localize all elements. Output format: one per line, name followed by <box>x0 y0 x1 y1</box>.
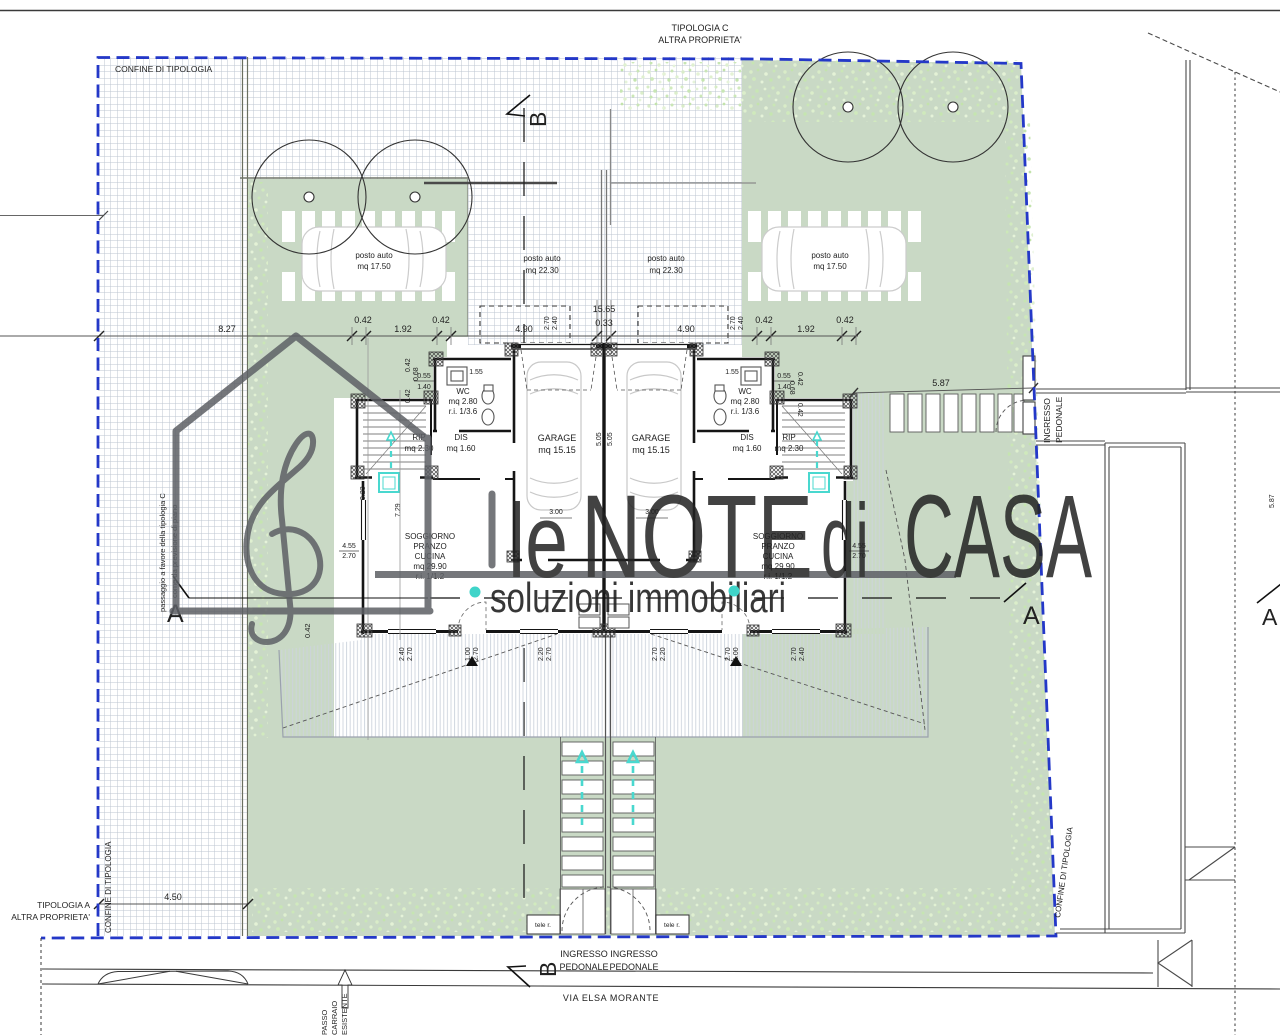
svg-text:posto auto: posto auto <box>355 251 393 260</box>
svg-text:2.70: 2.70 <box>342 553 356 560</box>
svg-text:A: A <box>1023 602 1040 630</box>
svg-text:r.i. 1/3.6: r.i. 1/3.6 <box>731 407 760 416</box>
svg-text:4.50: 4.50 <box>164 892 182 902</box>
svg-text:B: B <box>525 112 551 127</box>
svg-text:1.92: 1.92 <box>797 324 815 334</box>
svg-text:5.05: 5.05 <box>607 432 614 446</box>
svg-text:0.42: 0.42 <box>303 623 312 638</box>
svg-text:mq 1.60: mq 1.60 <box>447 444 476 453</box>
svg-text:5.87: 5.87 <box>1269 494 1276 508</box>
svg-text:tele r.: tele r. <box>664 922 680 929</box>
svg-text:PASSO: PASSO <box>320 1010 329 1035</box>
svg-text:2.40: 2.40 <box>399 647 406 661</box>
svg-text:4.55: 4.55 <box>342 543 356 550</box>
svg-text:ALTRA PROPRIETA': ALTRA PROPRIETA' <box>11 912 90 922</box>
svg-text:CARRAIO: CARRAIO <box>330 1001 339 1035</box>
svg-text:mq 2.80: mq 2.80 <box>731 397 760 406</box>
svg-text:DIS: DIS <box>454 433 467 442</box>
svg-text:mq 2.30: mq 2.30 <box>775 444 804 453</box>
svg-text:mq 1.60: mq 1.60 <box>733 444 762 453</box>
svg-text:0.42: 0.42 <box>405 389 412 403</box>
svg-text:2.20: 2.20 <box>538 647 545 661</box>
svg-text:WC: WC <box>456 387 470 396</box>
svg-text:2.40: 2.40 <box>552 316 559 330</box>
svg-text:GARAGE: GARAGE <box>632 433 671 443</box>
svg-text:0.42: 0.42 <box>432 315 450 325</box>
svg-text:1.55: 1.55 <box>469 369 483 376</box>
svg-text:INGRESSO: INGRESSO <box>1042 398 1052 443</box>
svg-text:di: di <box>821 483 869 600</box>
svg-text:0.42: 0.42 <box>354 315 372 325</box>
svg-text:CASA: CASA <box>904 471 1092 603</box>
svg-text:passaggio a favore della tipol: passaggio a favore della tipologia C <box>158 493 167 612</box>
svg-text:1.00: 1.00 <box>733 647 740 661</box>
svg-text:2.70: 2.70 <box>791 647 798 661</box>
svg-text:VIA ELSA MORANTE: VIA ELSA MORANTE <box>563 993 659 1003</box>
svg-text:4.90: 4.90 <box>677 324 695 334</box>
svg-text:A: A <box>1262 604 1278 630</box>
svg-text:tele r.: tele r. <box>535 922 551 929</box>
svg-text:2.70: 2.70 <box>730 316 737 330</box>
svg-text:0.42: 0.42 <box>796 403 803 417</box>
svg-text:ALTRA PROPRIETA': ALTRA PROPRIETA' <box>658 35 742 45</box>
svg-text:TIPOLOGIA A: TIPOLOGIA A <box>37 900 90 910</box>
svg-text:0.33: 0.33 <box>595 318 613 328</box>
svg-text:mq 22.30: mq 22.30 <box>525 266 559 275</box>
svg-text:2.70: 2.70 <box>546 647 553 661</box>
svg-text:soluzioni immobiliari: soluzioni immobiliari <box>490 574 786 621</box>
svg-text:RIP: RIP <box>782 433 795 442</box>
svg-text:8.27: 8.27 <box>218 324 236 334</box>
svg-text:B: B <box>535 962 561 977</box>
svg-text:DIS: DIS <box>740 433 753 442</box>
svg-text:2.70: 2.70 <box>544 316 551 330</box>
svg-text:15.65: 15.65 <box>593 304 616 314</box>
svg-text:posto auto: posto auto <box>647 254 685 263</box>
svg-text:posto auto: posto auto <box>811 251 849 260</box>
svg-text:PEDONALE: PEDONALE <box>609 962 658 972</box>
svg-text:mq 22.30: mq 22.30 <box>649 266 683 275</box>
svg-text:2.40: 2.40 <box>799 647 806 661</box>
svg-text:2.70: 2.70 <box>725 647 732 661</box>
svg-text:PEDONALE: PEDONALE <box>1054 396 1064 443</box>
svg-text:7.29: 7.29 <box>395 503 402 517</box>
svg-text:2.40: 2.40 <box>738 316 745 330</box>
svg-text:r.i. 1/3.6: r.i. 1/3.6 <box>449 407 478 416</box>
svg-text:mq 15.15: mq 15.15 <box>538 445 576 455</box>
svg-text:2.70: 2.70 <box>407 647 414 661</box>
svg-text:INGRESSO: INGRESSO <box>610 949 658 959</box>
svg-text:0.42: 0.42 <box>796 372 803 386</box>
svg-text:GARAGE: GARAGE <box>538 433 577 443</box>
svg-text:WC: WC <box>738 387 752 396</box>
svg-text:1.55: 1.55 <box>725 369 739 376</box>
svg-text:4.90: 4.90 <box>515 324 533 334</box>
svg-text:posto auto: posto auto <box>523 254 561 263</box>
svg-text:0.42: 0.42 <box>836 315 854 325</box>
svg-text:TIPOLOGIA C: TIPOLOGIA C <box>671 23 729 33</box>
svg-text:1.40: 1.40 <box>417 384 431 391</box>
svg-text:mq 17.50: mq 17.50 <box>357 262 391 271</box>
svg-text:5.05: 5.05 <box>596 432 603 446</box>
svg-text:INGRESSO: INGRESSO <box>560 949 608 959</box>
svg-text:0.68: 0.68 <box>413 367 420 381</box>
svg-text:CONFINE DI TIPOLOGIA: CONFINE DI TIPOLOGIA <box>115 64 212 74</box>
svg-text:5.87: 5.87 <box>932 378 950 388</box>
svg-text:0.55: 0.55 <box>777 373 791 380</box>
svg-text:1.92: 1.92 <box>394 324 412 334</box>
svg-text:mq 17.50: mq 17.50 <box>813 262 847 271</box>
svg-text:2.70: 2.70 <box>652 647 659 661</box>
svg-text:mq 2.80: mq 2.80 <box>449 397 478 406</box>
svg-text:0.42: 0.42 <box>405 358 412 372</box>
svg-text:2.20: 2.20 <box>660 647 667 661</box>
svg-text:1.00: 1.00 <box>465 647 472 661</box>
svg-text:mq 15.15: mq 15.15 <box>632 445 670 455</box>
svg-text:2.70: 2.70 <box>473 647 480 661</box>
svg-text:CONFINE DI TIPOLOGIA: CONFINE DI TIPOLOGIA <box>104 841 113 933</box>
svg-text:0.68: 0.68 <box>788 381 795 395</box>
svg-text:0.42: 0.42 <box>755 315 773 325</box>
svg-text:9.23: 9.23 <box>360 486 367 500</box>
